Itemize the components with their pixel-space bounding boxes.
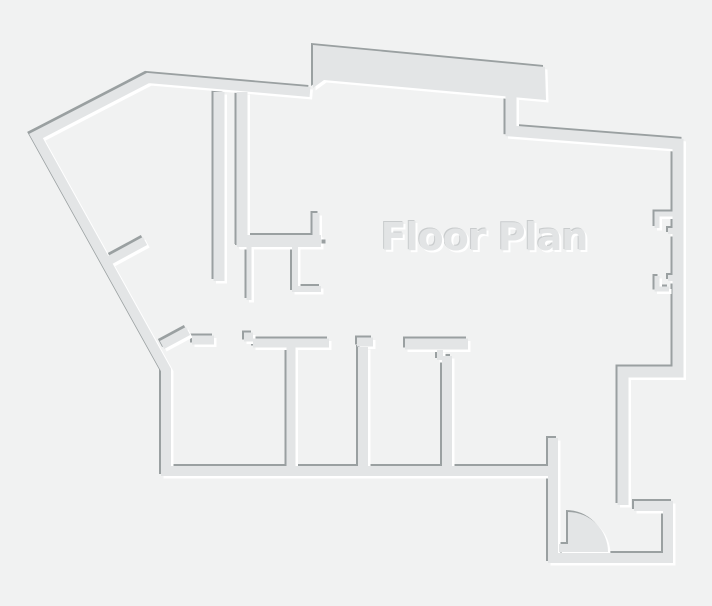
emboss-layer-main: [36, 45, 678, 558]
outer-wall-east: [511, 95, 678, 505]
door-swing: [568, 512, 608, 552]
floor-plan-drawing: [0, 0, 712, 606]
angled-door-stub-2: [162, 331, 188, 345]
outer-wall-east: [514, 98, 681, 508]
wall-dot: [322, 240, 326, 244]
outer-wall-east: [509, 93, 676, 503]
floor-plan-stage: Floor Plan: [0, 0, 712, 606]
floor-plan-title: Floor Plan: [381, 215, 588, 259]
